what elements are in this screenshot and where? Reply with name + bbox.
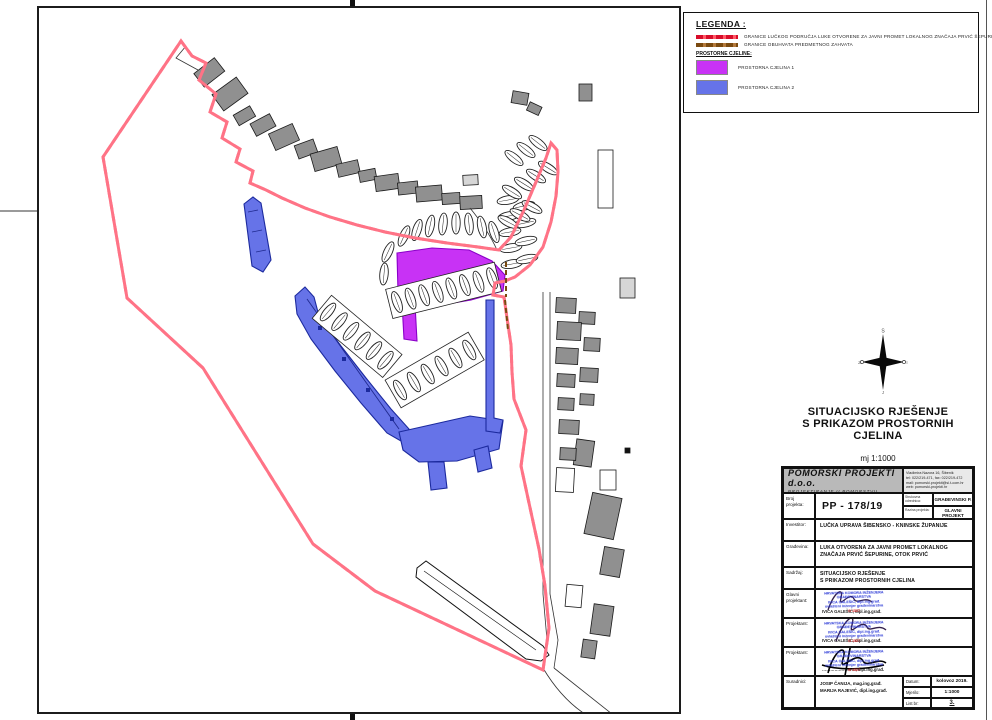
legend-subtitle: PROSTORNE CJELINE: (696, 51, 968, 57)
fold-tick-bottom (350, 714, 355, 720)
legend-zone-2: PROSTORNA CJELINA 2 (696, 80, 968, 95)
drawing-title-line1: SITUACIJSKO RJEŠENJE (783, 406, 973, 418)
map-sheet (37, 6, 681, 714)
compass-n: S (881, 329, 885, 335)
stamp-blue: HRVATSKA KOMORA INŽENJERA GRAĐEVINARSTVA… (816, 590, 892, 614)
map-svg (39, 8, 679, 712)
field-value-broj: PP - 178/19 (815, 493, 903, 519)
field-label-datum: Datum: (903, 676, 931, 687)
title-block: POMORSKI PROJEKTI d.o.o. PROJEKTIRANJE U… (783, 468, 973, 708)
drawing-title-line2: S PRIKAZOM PROSTORNIH CJELINA (783, 418, 973, 442)
zone-1-label: PROSTORNA CJELINA 1 (738, 65, 794, 70)
field-value-investitor: LUČKA UPRAVA ŠIBENSKO - KNINSKE ŽUPANIJE (815, 519, 973, 541)
field-value-gradjevina: LUKA OTVORENA ZA JAVNI PROMET LOKALNOG Z… (815, 541, 973, 567)
stamp-code: G 1527 (848, 639, 860, 643)
zone-2-swatch (696, 80, 728, 95)
map-buildings-right (555, 150, 630, 659)
stamp-blue: HRVATSKA KOMORA INŽENJERA GRAĐEVINARSTVA… (816, 649, 892, 673)
drawing-title: SITUACIJSKO RJEŠENJE S PRIKAZOM PROSTORN… (783, 406, 973, 463)
field-value-mjerilo: 1:1000 (931, 687, 973, 698)
company-address: Vladimira Nazora 16, Šibenik tel: 022/21… (903, 468, 973, 493)
stamp-blue: HRVATSKA KOMORA INŽENJERA GRAĐEVINARSTVA… (816, 620, 892, 644)
field-glavni-projektant: IVICA GALEŠIĆ, dipl.ing.građ. HRVATSKA K… (815, 589, 973, 618)
field-suradnici: JOSIP ČANIJA, mag.ing.građ. MARIJA RAJEV… (815, 676, 903, 708)
obuhvat-line (505, 262, 508, 330)
field-label-list: List br: (903, 698, 931, 708)
suradnik-2: MARIJA RAJEVIĆ, dipl.ing.građ. (820, 687, 902, 694)
compass-e: I (906, 360, 907, 365)
sadrzaj-line2: S PRIKAZOM PROSTORNIH CJELINA (820, 578, 970, 585)
field-label-mjerilo: Mjerilo: (903, 687, 931, 698)
gradjevina-line1: LUKA OTVORENA ZA JAVNI PROMET LOKALNOG (820, 545, 970, 552)
legend-item-label: GRANICE LUČKOG PODRUČJA LUKE OTVORENE ZA… (744, 34, 992, 39)
stamp-code: G 1527 (848, 668, 860, 672)
field-label-strukovna: Strukovna odrednica: (903, 493, 933, 506)
obuhvat-line-symbol (696, 43, 738, 47)
field-label-projektant-1: Projektant: (783, 618, 815, 647)
legend-item-port-boundary: GRANICE LUČKOG PODRUČJA LUKE OTVORENE ZA… (696, 34, 968, 39)
gradjevina-line2: ZNAČAJA PRVIĆ ŠEPURINE, OTOK PRVIĆ (820, 552, 970, 559)
legend-item-obuhvat: GRANICE OBUHVATA PREDMETNOG ZAHVATA (696, 42, 968, 47)
field-value-razina: GLAVNI PROJEKT (933, 506, 973, 519)
page-edge-line (986, 0, 987, 720)
compass-s: J (882, 390, 884, 394)
compass-w: Z (858, 360, 861, 365)
address-line: tel: 022/219-471, fax: 022/219-472 (906, 476, 970, 481)
field-label-sadrzaj: Sadržaj: (783, 567, 815, 589)
address-line: web: pomorski-projekti.hr (906, 485, 970, 490)
field-label-investitor: Investitor: (783, 519, 815, 541)
company-name: POMORSKI PROJEKTI d.o.o. (788, 468, 902, 488)
suradnik-1: JOSIP ČANIJA, mag.ing.građ. (820, 680, 902, 687)
zone-2-label: PROSTORNA CJELINA 2 (738, 85, 794, 90)
sadrzaj-line1: SITUACIJSKO RJEŠENJE (820, 571, 970, 578)
port-boundary-line-symbol (696, 35, 738, 39)
drawing-page: LEGENDA : GRANICE LUČKOG PODRUČJA LUKE O… (0, 0, 992, 720)
compass-rose: S I J Z (858, 328, 908, 399)
zone-1-swatch (696, 60, 728, 75)
zone-2-detached-pier (244, 197, 271, 272)
field-label-suradnici: Suradnici: (783, 676, 815, 708)
field-label-projektant-2: Projektant: (783, 647, 815, 676)
company-logo: POMORSKI PROJEKTI d.o.o. PROJEKTIRANJE U… (783, 468, 903, 493)
legend-item-label: GRANICE OBUHVATA PREDMETNOG ZAHVATA (744, 42, 853, 47)
field-value-list: 3. (931, 698, 973, 708)
field-projektant-1: IVICA GALEŠIĆ, dipl.ing.građ. HRVATSKA K… (815, 618, 973, 647)
field-label-gradjevina: Građevina: (783, 541, 815, 567)
map-bottom-pier (416, 561, 549, 661)
legend-zone-1: PROSTORNA CJELINA 1 (696, 60, 968, 75)
field-value-strukovna: GRAĐEVINSKI P. (933, 493, 973, 506)
field-label-razina: Razina projekta: (903, 506, 933, 519)
drawing-scale-note: mj 1:1000 (783, 454, 973, 463)
fold-mark-left (0, 210, 37, 212)
legend-title: LEGENDA : (696, 19, 968, 29)
legend-box: LEGENDA : GRANICE LUČKOG PODRUČJA LUKE O… (683, 12, 979, 113)
field-value-datum: kolovoz 2019. (931, 676, 973, 687)
field-label-glavni-projektant: Glavni projektant: (783, 589, 815, 618)
field-value-sadrzaj: SITUACIJSKO RJEŠENJE S PRIKAZOM PROSTORN… (815, 567, 973, 589)
field-label-broj: Broj projekta: (783, 493, 815, 519)
stamp-code: G 1527 (848, 609, 860, 613)
field-projektant-2: ……………………, dipl.ing.građ. HRVATSKA KOMORA… (815, 647, 973, 676)
